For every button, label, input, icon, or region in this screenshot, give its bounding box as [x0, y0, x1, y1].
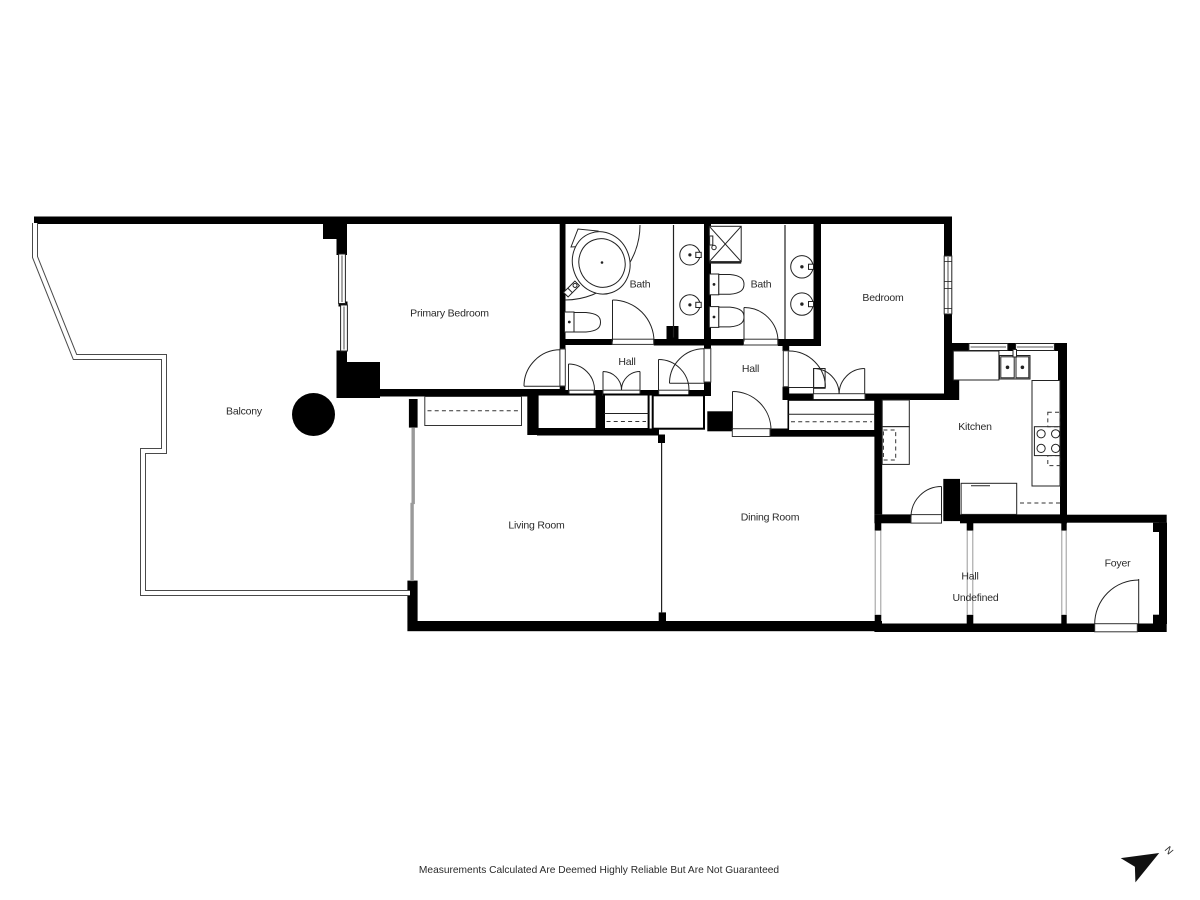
svg-text:Primary Bedroom: Primary Bedroom	[410, 308, 489, 320]
svg-text:Bath: Bath	[751, 279, 772, 291]
svg-text:Hall: Hall	[961, 571, 978, 583]
svg-text:Bath: Bath	[630, 279, 651, 291]
svg-text:Hall: Hall	[742, 363, 759, 375]
svg-text:Measurements Calculated Are De: Measurements Calculated Are Deemed Highl…	[419, 865, 779, 876]
svg-text:Dining Room: Dining Room	[741, 512, 800, 524]
svg-text:Bedroom: Bedroom	[862, 292, 904, 304]
svg-text:Living Room: Living Room	[508, 520, 565, 532]
svg-text:Balcony: Balcony	[226, 406, 263, 418]
svg-text:Kitchen: Kitchen	[958, 421, 992, 433]
svg-text:Hall: Hall	[618, 356, 635, 368]
svg-text:Undefined: Undefined	[952, 592, 998, 604]
svg-text:Foyer: Foyer	[1105, 558, 1132, 570]
